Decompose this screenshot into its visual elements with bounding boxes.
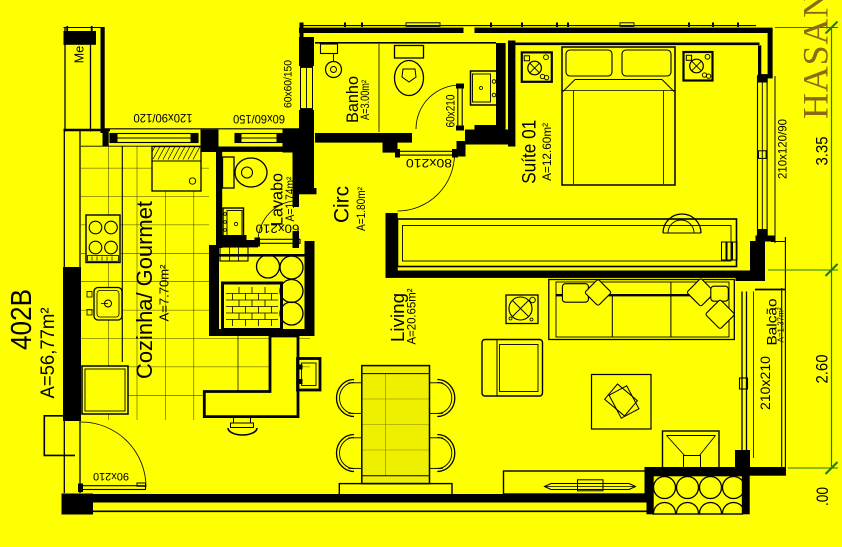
svg-text:A=7.70m²: A=7.70m² <box>157 264 172 322</box>
svg-text:60x210: 60x210 <box>446 95 458 128</box>
svg-text:Me: Me <box>72 46 86 63</box>
svg-text:402B: 402B <box>6 289 38 350</box>
svg-text:210x210: 210x210 <box>757 356 773 410</box>
svg-text:A=3.00m²: A=3.00m² <box>360 80 372 120</box>
svg-text:A=56,77m²: A=56,77m² <box>37 307 59 398</box>
svg-text:A=1.37m²: A=1.37m² <box>776 307 786 342</box>
svg-text:A=1.80m²: A=1.80m² <box>356 187 368 231</box>
svg-text:Lavabo: Lavabo <box>267 173 286 226</box>
svg-text:2.60: 2.60 <box>812 355 831 384</box>
svg-text:80x210: 80x210 <box>406 156 452 170</box>
svg-text:60x60/150: 60x60/150 <box>282 60 294 108</box>
svg-text:Circ: Circ <box>330 186 353 223</box>
svg-text:A=20.65m²: A=20.65m² <box>405 289 419 345</box>
svg-text:3.35: 3.35 <box>812 137 831 166</box>
svg-text:Cozinha/ Gourmet: Cozinha/ Gourmet <box>132 201 157 379</box>
svg-text:210x120/90: 210x120/90 <box>776 119 790 179</box>
svg-text:Suíte 01: Suíte 01 <box>520 120 541 184</box>
svg-text:HASAN: HASAN <box>796 0 836 119</box>
svg-text:90x210: 90x210 <box>93 470 129 482</box>
svg-text:120x90/120: 120x90/120 <box>133 111 192 125</box>
svg-text:A=12.60m²: A=12.60m² <box>540 123 554 181</box>
svg-text:A=1.74m²: A=1.74m² <box>285 176 297 221</box>
svg-text:.00: .00 <box>813 487 832 506</box>
svg-text:60x210: 60x210 <box>255 221 299 235</box>
svg-text:60x60/150: 60x60/150 <box>233 112 285 126</box>
